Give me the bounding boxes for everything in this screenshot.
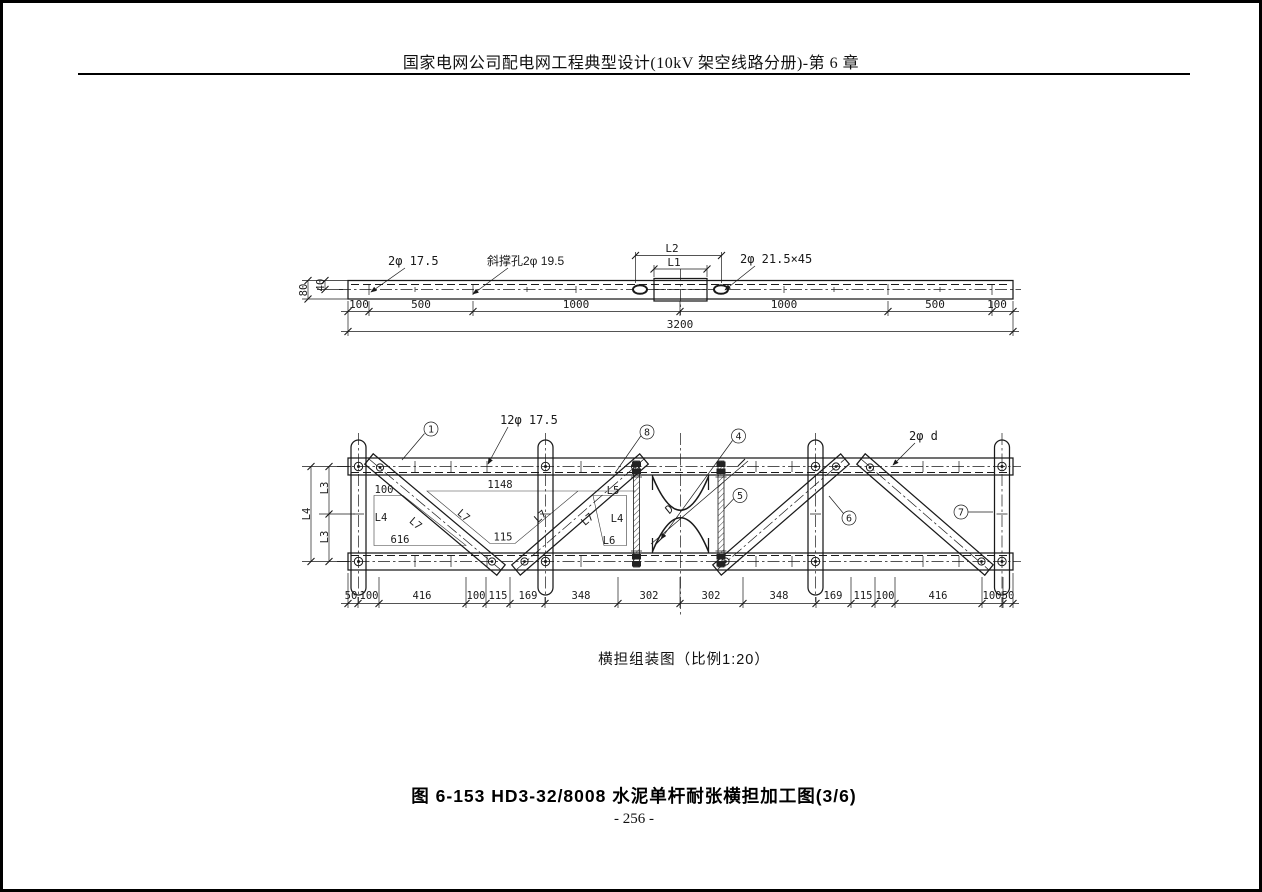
seg-dim: 100 (349, 298, 369, 311)
svg-text:L7: L7 (579, 511, 596, 528)
svg-text:115: 115 (494, 532, 513, 544)
assembly-bolt-label: 2φ d (909, 429, 938, 443)
assembly-hole-label: 12φ 17.5 (500, 413, 558, 427)
svg-text:100: 100 (375, 484, 394, 496)
figure-caption: 图 6-153 HD3-32/8008 水泥单杆耐张横担加工图(3/6) (134, 783, 1134, 808)
bar-hole-ticks (415, 461, 959, 567)
svg-text:50: 50 (1002, 590, 1015, 602)
svg-text:5: 5 (737, 491, 743, 502)
svg-text:169: 169 (824, 590, 843, 602)
svg-text:L7: L7 (455, 507, 472, 524)
panel-labels: 100 L4 616 1148 115 L5 L4 L6 L7 L7 L7 L7 (375, 479, 624, 547)
svg-text:7: 7 (958, 508, 964, 519)
svg-text:8: 8 (644, 428, 650, 439)
svg-text:6: 6 (846, 514, 852, 525)
assembly-drawing: D 1 8 4 5 6 7 (301, 413, 1021, 615)
svg-text:302: 302 (702, 590, 721, 602)
svg-text:169: 169 (519, 590, 538, 602)
dim-80: 80 (298, 284, 310, 297)
svg-text:348: 348 (770, 590, 789, 602)
svg-text:115: 115 (854, 590, 873, 602)
svg-text:1148: 1148 (487, 479, 512, 491)
seg-dim: 1000 (563, 298, 590, 311)
seg-dim: 1000 (771, 298, 798, 311)
svg-text:1: 1 (428, 425, 434, 436)
svg-text:L4: L4 (301, 508, 313, 521)
svg-text:616: 616 (391, 534, 410, 546)
svg-text:L6: L6 (603, 535, 616, 547)
technical-drawing-canvas: 2φ 17.5 斜撑孔2φ 19.5 2φ 21.5×45 L2 L1 80 4… (3, 3, 1262, 892)
slot-hole-left (633, 285, 647, 294)
assembly-scale-caption: 横担组装图（比例1:20） (484, 648, 884, 669)
bar-elevation-drawing: 2φ 17.5 斜撑孔2φ 19.5 2φ 21.5×45 L2 L1 80 4… (298, 242, 1021, 336)
svg-text:302: 302 (640, 590, 659, 602)
svg-text:L5: L5 (607, 485, 620, 497)
svg-text:L4: L4 (611, 513, 624, 525)
document-page: 国家电网公司配电网工程典型设计(10kV 架空线路分册)-第 6 章 (0, 0, 1262, 892)
brace-hole-label: 斜撑孔2φ 19.5 (487, 253, 564, 268)
dim-total: 3200 (667, 318, 694, 331)
assembly-bottom-dims: 50 100 416 100 115 169 348 302 302 348 1… (341, 573, 1019, 608)
page-number: - 256 - (134, 811, 1134, 828)
svg-text:100: 100 (360, 590, 379, 602)
bar-hole-label: 2φ 17.5 (388, 254, 439, 268)
svg-text:416: 416 (929, 590, 948, 602)
assembly-left-dims: L4 L3 L3 (301, 463, 355, 565)
svg-text:4: 4 (735, 432, 741, 443)
seg-dim: 500 (925, 298, 945, 311)
svg-text:348: 348 (572, 590, 591, 602)
dim-L1: L1 (667, 256, 680, 269)
svg-text:50: 50 (345, 590, 358, 602)
seg-dim: 100 (987, 298, 1007, 311)
dim-L2: L2 (665, 242, 678, 255)
svg-text:100: 100 (983, 590, 1002, 602)
svg-text:416: 416 (413, 590, 432, 602)
svg-text:L7: L7 (407, 515, 424, 532)
svg-text:L3: L3 (319, 531, 331, 544)
svg-text:L4: L4 (375, 512, 388, 524)
svg-text:100: 100 (467, 590, 486, 602)
dim-40: 40 (315, 279, 327, 292)
svg-text:L7: L7 (532, 508, 549, 525)
svg-text:115: 115 (489, 590, 508, 602)
svg-text:100: 100 (876, 590, 895, 602)
seg-dim: 500 (411, 298, 431, 311)
svg-text:L3: L3 (319, 482, 331, 495)
slot-label: 2φ 21.5×45 (740, 252, 812, 266)
